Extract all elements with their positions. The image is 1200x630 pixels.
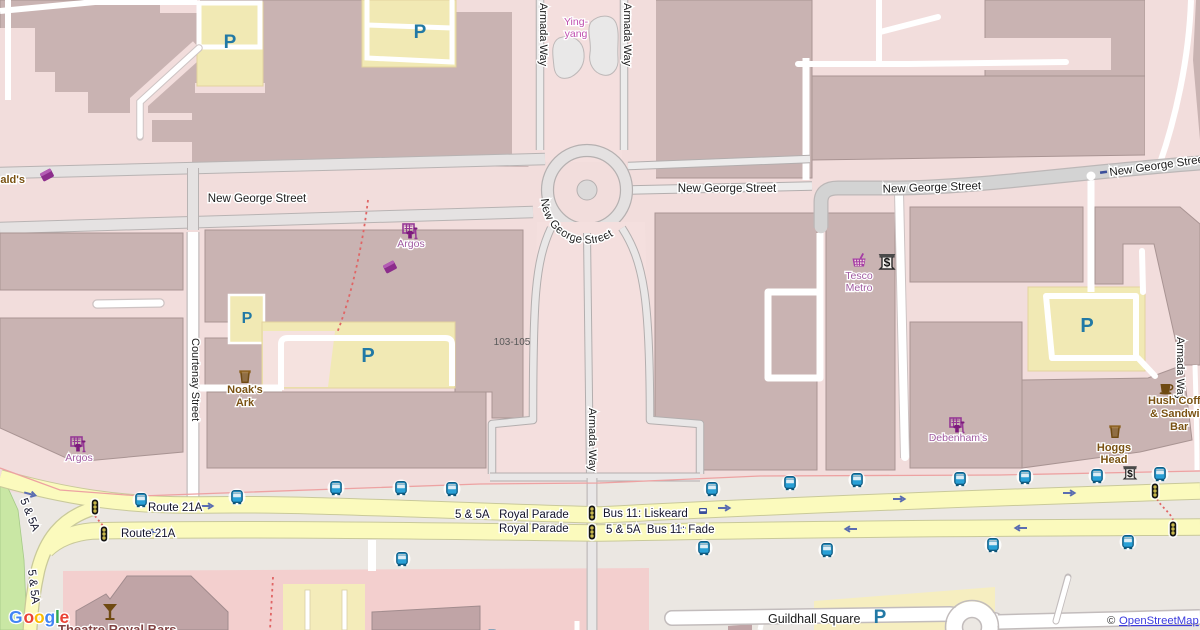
svg-text:Head: Head — [1101, 454, 1128, 466]
svg-text:Armada Way: Armada Way — [537, 3, 549, 67]
svg-text:Bar: Bar — [1170, 421, 1189, 433]
svg-text:Armada Way: Armada Way — [586, 408, 598, 472]
svg-text:OpenStreetMap: OpenStreetMap — [1119, 615, 1199, 627]
svg-text:o: o — [24, 607, 35, 627]
svg-text:Guildhall Square: Guildhall Square — [768, 612, 860, 626]
svg-text:5 & 5A Royal Parade: 5 & 5A Royal Parade — [455, 509, 569, 521]
svg-text:o: o — [34, 607, 45, 627]
svg-text:& Sandwich: & Sandwich — [1150, 408, 1200, 420]
svg-text:Route 21A: Route 21A — [148, 502, 203, 514]
svg-text:Theatre Royal Bars: Theatre Royal Bars — [58, 622, 177, 630]
svg-text:yang: yang — [565, 28, 588, 40]
svg-text:Hush Coffee: Hush Coffee — [1148, 395, 1200, 407]
svg-text:McDonald's: McDonald's — [0, 174, 25, 186]
svg-text:Ying-: Ying- — [564, 16, 589, 28]
svg-text:Armada Way: Armada Way — [621, 3, 633, 67]
svg-text:Tesco: Tesco — [845, 270, 873, 282]
svg-text:P: P — [414, 22, 427, 43]
svg-text:P: P — [224, 32, 237, 53]
svg-text:P: P — [242, 310, 253, 327]
svg-text:P: P — [874, 607, 887, 628]
svg-text:Royal Parade: Royal Parade — [499, 523, 569, 535]
svg-text:Hoggs: Hoggs — [1097, 442, 1131, 454]
svg-text:Route 21A: Route 21A — [121, 528, 176, 540]
svg-text:5 & 5A Bus 11: Fade: 5 & 5A Bus 11: Fade — [606, 524, 714, 536]
svg-text:Bus 11: Liskeard: Bus 11: Liskeard — [603, 508, 688, 520]
svg-text:Armada Way: Armada Way — [1174, 337, 1186, 401]
svg-text:P: P — [487, 626, 498, 630]
svg-text:P: P — [1080, 315, 1093, 337]
svg-text:©: © — [1107, 615, 1116, 627]
svg-text:New George Street: New George Street — [678, 183, 777, 195]
svg-text:Metro: Metro — [846, 282, 873, 294]
svg-text:g: g — [45, 607, 56, 627]
svg-text:103-105: 103-105 — [494, 337, 531, 348]
svg-text:e: e — [60, 607, 70, 627]
svg-text:Courtenay Street: Courtenay Street — [189, 338, 201, 421]
svg-text:P: P — [361, 345, 374, 367]
svg-text:Ark: Ark — [236, 397, 255, 409]
svg-text:Argos: Argos — [65, 452, 92, 464]
svg-text:New George Street: New George Street — [208, 193, 307, 205]
svg-text:G: G — [9, 607, 23, 627]
svg-text:Debenham's: Debenham's — [929, 432, 988, 444]
svg-text:Noak's: Noak's — [227, 384, 263, 396]
svg-text:Argos: Argos — [397, 238, 424, 250]
